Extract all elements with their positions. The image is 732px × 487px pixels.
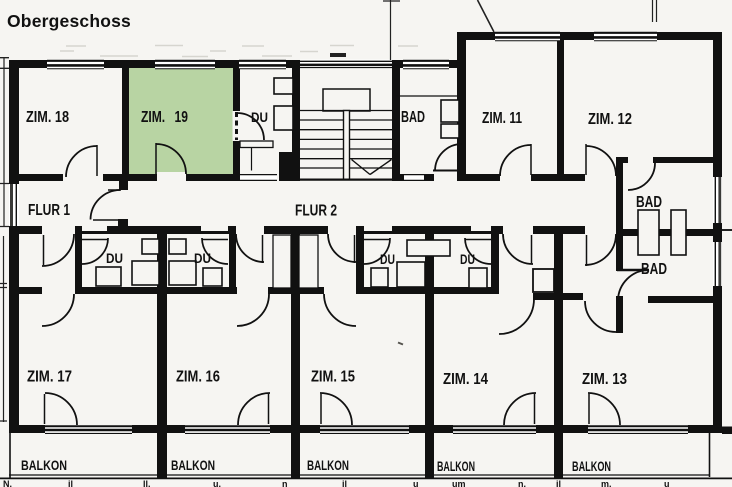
svg-text:FLUR 2: FLUR 2 [295, 203, 337, 220]
svg-text:FLUR 1: FLUR 1 [28, 202, 70, 219]
svg-text:n: n [282, 479, 288, 487]
svg-text:Obergeschoss: Obergeschoss [7, 11, 131, 31]
svg-text:BALKON: BALKON [171, 457, 215, 473]
svg-text:DU: DU [194, 250, 211, 266]
svg-text:ZIM. 17: ZIM. 17 [27, 369, 72, 386]
svg-text:BALKON: BALKON [437, 458, 475, 474]
svg-text:ZIM. 19: ZIM. 19 [141, 109, 188, 126]
svg-text:u: u [664, 479, 670, 487]
svg-text:ZIM. 13: ZIM. 13 [582, 371, 627, 388]
svg-text:BALKON: BALKON [21, 457, 67, 473]
svg-text:BAD: BAD [401, 109, 425, 126]
svg-text:il: il [342, 479, 347, 487]
svg-text:DU: DU [460, 251, 475, 267]
svg-text:m.: m. [601, 479, 612, 487]
svg-text:ZIM. 18: ZIM. 18 [26, 109, 69, 126]
svg-text:ZIM. 11: ZIM. 11 [482, 110, 522, 127]
svg-text:ll.: ll. [143, 479, 151, 487]
svg-text:um: um [452, 479, 466, 487]
svg-text:BALKON: BALKON [307, 457, 349, 473]
svg-text:n.: n. [518, 479, 526, 487]
svg-text:ZIM. 15: ZIM. 15 [311, 369, 355, 386]
svg-text:BAD: BAD [641, 261, 667, 278]
svg-text:u: u [413, 479, 419, 487]
svg-text:ZIM. 12: ZIM. 12 [588, 111, 632, 128]
svg-text:BAD: BAD [636, 194, 662, 211]
svg-text:DU: DU [380, 251, 395, 267]
svg-text:ZIM. 14: ZIM. 14 [443, 371, 488, 388]
svg-text:BALKON: BALKON [572, 458, 611, 474]
svg-text:u.: u. [213, 479, 221, 487]
svg-text:ZIM. 16: ZIM. 16 [176, 369, 220, 386]
svg-text:il: il [556, 479, 561, 487]
svg-text:il: il [68, 479, 73, 487]
svg-text:DU: DU [106, 250, 123, 266]
svg-text:N.: N. [3, 479, 12, 487]
svg-text:DU: DU [251, 109, 268, 125]
